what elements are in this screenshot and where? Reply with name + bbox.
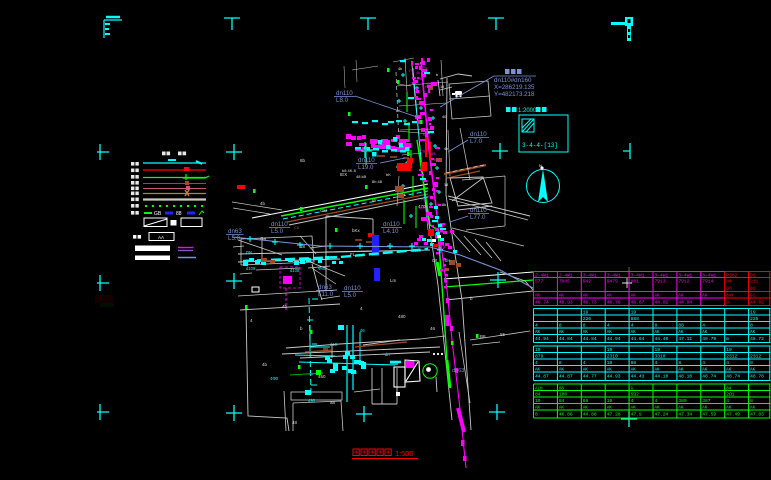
svg-text:d108: d108 [290, 268, 300, 273]
svg-text:AK: AK [535, 331, 541, 335]
svg-text:44.10: 44.10 [655, 374, 669, 380]
svg-text:2312: 2312 [750, 354, 761, 360]
svg-text:dn63: dn63 [452, 368, 464, 374]
svg-text:100: 100 [559, 392, 568, 398]
svg-text:47.9: 47.9 [631, 412, 642, 418]
svg-text:dn63: dn63 [318, 284, 332, 291]
svg-text:47.11: 47.11 [678, 336, 692, 342]
svg-text:AK: AK [750, 407, 756, 411]
svg-text:4Φ0: 4Φ0 [270, 376, 279, 381]
svg-text:2-4W1: 2-4W1 [535, 273, 549, 279]
svg-text:dn63: dn63 [228, 228, 242, 235]
svg-text:2-4W1: 2-4W1 [559, 273, 573, 279]
svg-text:L11.0: L11.0 [318, 291, 334, 298]
svg-text:19: 19 [631, 310, 637, 316]
svg-text:8b: 8b [300, 158, 306, 163]
svg-text:226: 226 [583, 316, 592, 322]
svg-text:bK: bK [386, 172, 391, 177]
svg-text:d10: d10 [330, 342, 338, 347]
svg-text:4: 4 [607, 323, 610, 329]
svg-text:8AK: 8AK [726, 295, 734, 299]
svg-text:8: 8 [678, 360, 681, 366]
svg-text:8: 8 [750, 360, 753, 366]
svg-text:48 kB: 48 kB [356, 174, 367, 179]
svg-text:46.86: 46.86 [559, 412, 573, 418]
svg-text:D1: D1 [750, 273, 756, 279]
svg-text:19: 19 [583, 310, 589, 316]
svg-text:dH: dH [445, 258, 450, 263]
svg-text:19: 19 [655, 347, 661, 353]
svg-text:AK: AK [607, 331, 613, 335]
svg-text:879: 879 [535, 354, 544, 360]
svg-text:AK: AK [726, 407, 732, 411]
svg-text:1:500: 1:500 [395, 449, 414, 458]
svg-text:3-4-4-[13]: 3-4-4-[13] [522, 142, 558, 149]
svg-text:4k: 4k [416, 70, 420, 75]
svg-text:AK: AK [655, 331, 661, 335]
svg-text:dn110: dn110 [470, 207, 487, 214]
svg-text:19: 19 [607, 398, 613, 404]
svg-text:AK: AK [702, 369, 708, 373]
svg-text:81: 81 [750, 286, 756, 292]
svg-text:AK: AK [750, 331, 756, 335]
svg-text:AK: AK [655, 295, 661, 299]
svg-text:AK: AK [535, 295, 541, 299]
svg-text:9479: 9479 [607, 279, 618, 285]
svg-text:FL: FL [350, 252, 356, 257]
svg-text:18: 18 [440, 85, 444, 89]
svg-text:Gkl: Gkl [320, 208, 327, 213]
svg-text:dn110: dn110 [383, 221, 400, 228]
svg-text:P8: P8 [428, 194, 434, 199]
svg-text:8: 8 [726, 300, 729, 306]
svg-text:48.74: 48.74 [702, 374, 716, 380]
svg-text:8: 8 [559, 360, 562, 366]
svg-text:48.73: 48.73 [583, 300, 597, 306]
svg-text:225: 225 [750, 316, 759, 322]
svg-text:Pg: Pg [421, 197, 426, 202]
svg-text:AK: AK [607, 369, 613, 373]
svg-text:AK: AK [607, 295, 613, 299]
svg-text:68: 68 [583, 398, 589, 404]
svg-text:L4.10: L4.10 [383, 228, 399, 235]
svg-text:AK: AK [678, 331, 684, 335]
svg-text:AK: AK [631, 369, 637, 373]
svg-text:dn110: dn110 [271, 221, 288, 228]
svg-text:AK: AK [631, 295, 637, 299]
svg-text:8: 8 [535, 412, 538, 418]
svg-text:5Ω2: 5Ω2 [631, 392, 640, 398]
svg-text:DN: DN [246, 250, 252, 255]
svg-text:AK: AK [583, 295, 589, 299]
svg-text:18: 18 [300, 244, 306, 249]
svg-text:AK: AK [655, 407, 661, 411]
svg-text:8: 8 [559, 323, 562, 329]
svg-text:2Ω1: 2Ω1 [726, 392, 735, 398]
svg-text:4: 4 [655, 360, 658, 366]
svg-text:47.24: 47.24 [655, 412, 669, 418]
svg-text:7913: 7913 [655, 279, 666, 285]
svg-text:P8: P8 [417, 138, 423, 143]
svg-text:AK: AK [678, 295, 684, 299]
svg-text:3-4W1: 3-4W1 [583, 273, 597, 279]
svg-text:4: 4 [535, 323, 538, 329]
svg-text:7985: 7985 [559, 279, 570, 285]
svg-text:4b: 4b [282, 304, 288, 309]
svg-text:1:2000: 1:2000 [518, 108, 537, 114]
svg-text:b: b [436, 73, 438, 77]
svg-text:AK: AK [678, 407, 684, 411]
svg-text:08: 08 [432, 258, 438, 263]
svg-text:dn110: dn110 [336, 90, 353, 97]
svg-text:44.77: 44.77 [583, 374, 597, 380]
svg-text:480: 480 [398, 314, 406, 319]
svg-text:Pg: Pg [409, 68, 414, 73]
svg-text:19: 19 [607, 360, 613, 366]
svg-text:44.84: 44.84 [559, 336, 573, 342]
svg-text:4: 4 [726, 360, 729, 366]
svg-text:48.93: 48.93 [559, 300, 573, 306]
svg-text:d110: d110 [412, 248, 422, 253]
svg-text:4: 4 [535, 360, 538, 366]
svg-text:48.10: 48.10 [678, 374, 692, 380]
svg-text:4: 4 [726, 398, 729, 404]
svg-text:8b: 8b [442, 203, 446, 207]
svg-text:L5.0: L5.0 [228, 235, 241, 242]
svg-text:19: 19 [750, 310, 756, 316]
svg-text:dn110: dn110 [358, 157, 375, 164]
svg-text:GB: GB [154, 211, 162, 217]
svg-text:4: 4 [631, 398, 634, 404]
svg-text:dn110#dn160: dn110#dn160 [494, 77, 532, 84]
svg-text:84: 84 [726, 388, 732, 392]
svg-text:48.87: 48.87 [631, 300, 645, 306]
svg-text:88: 88 [678, 323, 684, 329]
svg-text:88: 88 [176, 211, 182, 217]
svg-text:48.72: 48.72 [750, 336, 764, 342]
svg-text:942: 942 [583, 279, 592, 285]
svg-text:AK: AK [559, 407, 565, 411]
svg-text:bKx: bKx [352, 228, 361, 233]
svg-text:4: 4 [583, 360, 586, 366]
svg-text:3-4W1: 3-4W1 [607, 273, 621, 279]
svg-text:44.84: 44.84 [678, 300, 692, 306]
svg-text:490: 490 [308, 398, 316, 403]
svg-text:44.94: 44.94 [535, 336, 549, 342]
svg-text:4b: 4b [398, 67, 402, 71]
svg-text:19: 19 [726, 347, 732, 353]
svg-text:387: 387 [702, 398, 711, 404]
svg-text:kW: kW [423, 132, 429, 137]
svg-text:AK: AK [726, 369, 732, 373]
svg-text:7912: 7912 [678, 279, 689, 285]
svg-text:44.46: 44.46 [655, 336, 669, 342]
svg-text:44.94: 44.94 [607, 336, 621, 342]
svg-text:8: 8 [750, 398, 753, 404]
svg-text:Ga: Ga [260, 236, 267, 241]
svg-text:AK: AK [583, 407, 589, 411]
svg-text:4b: 4b [260, 201, 266, 206]
svg-text:4: 4 [702, 323, 705, 329]
svg-text:P8: P8 [420, 103, 426, 108]
svg-text:48: 48 [292, 420, 298, 425]
svg-text:AK: AK [702, 331, 708, 335]
svg-text:470: 470 [418, 204, 426, 209]
svg-text:44.87: 44.87 [559, 374, 573, 380]
svg-text:3-4W1: 3-4W1 [631, 273, 645, 279]
svg-text:48.76: 48.76 [607, 300, 621, 306]
svg-text:L5.0: L5.0 [344, 292, 357, 299]
svg-text:44.84: 44.84 [631, 336, 645, 342]
svg-text:48.74: 48.74 [535, 300, 549, 306]
svg-text:dn110: dn110 [344, 285, 361, 292]
svg-text:AK: AK [559, 331, 565, 335]
svg-text:48.78: 48.78 [750, 374, 764, 380]
svg-text:46: 46 [430, 326, 436, 331]
svg-text:4b: 4b [262, 362, 268, 367]
svg-text:d8: d8 [352, 370, 357, 375]
svg-text:4: 4 [631, 323, 634, 329]
svg-text:L7.0: L7.0 [470, 138, 483, 145]
svg-text:44.82: 44.82 [655, 300, 669, 306]
svg-text:3310: 3310 [655, 354, 666, 360]
svg-text:dn110: dn110 [470, 131, 487, 138]
svg-text:47.49: 47.49 [726, 412, 740, 418]
svg-text:AK: AK [559, 369, 565, 373]
svg-text:48.74: 48.74 [726, 374, 740, 380]
svg-text:4: 4 [702, 360, 705, 366]
svg-text:3-4W1: 3-4W1 [678, 273, 692, 279]
svg-text:P382: P382 [726, 273, 737, 279]
svg-text:19: 19 [607, 347, 613, 353]
svg-text:AK: AK [559, 295, 565, 299]
svg-text:C8: C8 [294, 225, 300, 230]
svg-text:380: 380 [678, 398, 687, 404]
svg-text:47.28: 47.28 [607, 412, 621, 418]
svg-text:81: 81 [750, 295, 756, 299]
svg-text:44.84: 44.84 [583, 336, 597, 342]
svg-text:B8: B8 [480, 334, 486, 339]
svg-text:88: 88 [427, 81, 432, 86]
svg-text:47.83: 47.83 [750, 412, 764, 418]
svg-text:44.43: 44.43 [631, 374, 645, 380]
svg-text:88: 88 [431, 151, 436, 156]
svg-text:19: 19 [535, 347, 541, 353]
svg-text:8: 8 [750, 323, 753, 329]
svg-text:38: 38 [726, 286, 732, 292]
svg-text:8: 8 [583, 323, 586, 329]
svg-text:211: 211 [750, 279, 759, 285]
svg-text:2312: 2312 [726, 354, 737, 360]
svg-text:Pg: Pg [420, 148, 425, 153]
svg-text:44.88: 44.88 [583, 412, 597, 418]
svg-text:47.59: 47.59 [702, 412, 716, 418]
svg-text:L8.0: L8.0 [336, 97, 349, 104]
svg-text:8b 48: 8b 48 [372, 179, 383, 184]
svg-text:L5.0: L5.0 [271, 228, 284, 235]
svg-text:AK: AK [583, 369, 589, 373]
svg-text:2310: 2310 [607, 354, 618, 360]
svg-text:44.87: 44.87 [535, 374, 549, 380]
svg-text:460: 460 [318, 374, 326, 379]
svg-text:N: N [539, 163, 542, 168]
svg-text:55: 55 [500, 332, 506, 337]
svg-text:AK: AK [583, 331, 589, 335]
svg-text:3-4W1: 3-4W1 [702, 273, 716, 279]
svg-text:AK: AK [535, 369, 541, 373]
svg-text:4b: 4b [444, 147, 448, 151]
svg-text:Y=482173.218: Y=482173.218 [494, 91, 535, 98]
svg-text:AK: AK [702, 407, 708, 411]
svg-text:#M: #M [430, 162, 436, 167]
svg-text:40: 40 [442, 115, 446, 119]
svg-text:88: 88 [631, 360, 637, 366]
svg-text:981: 981 [631, 279, 640, 285]
svg-text:Φ60: Φ60 [318, 266, 327, 271]
svg-text:AK: AK [535, 407, 541, 411]
svg-text:L19.0: L19.0 [358, 164, 374, 171]
svg-text:48.79: 48.79 [702, 336, 716, 342]
svg-text:84: 84 [559, 398, 565, 404]
svg-text:4: 4 [655, 398, 658, 404]
svg-text:d6: d6 [360, 328, 365, 333]
svg-text:AK: AK [631, 407, 637, 411]
svg-text:8: 8 [655, 323, 658, 329]
svg-text:88: 88 [559, 388, 565, 392]
svg-text:577: 577 [535, 279, 544, 285]
svg-text:AK: AK [655, 369, 661, 373]
svg-text:ALH: ALH [535, 388, 543, 392]
svg-text:AK: AK [631, 331, 637, 335]
svg-text:84: 84 [535, 392, 541, 398]
svg-text:Pg: Pg [422, 65, 427, 70]
svg-text:84: 84 [726, 279, 732, 285]
svg-text:44.93: 44.93 [607, 374, 621, 380]
svg-text:tEX: tEX [340, 172, 347, 177]
svg-text:44.02: 44.02 [750, 300, 764, 306]
svg-text:18: 18 [444, 183, 448, 187]
svg-text:d108: d108 [246, 266, 256, 271]
svg-text:AK: AK [702, 295, 708, 299]
svg-text:47.34: 47.34 [678, 412, 692, 418]
svg-text:X=286219.135: X=286219.135 [494, 84, 535, 91]
svg-text:AK: AK [678, 369, 684, 373]
svg-text:19: 19 [535, 398, 541, 404]
svg-text:L77.0: L77.0 [470, 214, 486, 221]
svg-text:AA: AA [158, 235, 164, 240]
svg-text:888: 888 [631, 316, 640, 322]
svg-text:AK: AK [750, 369, 756, 373]
svg-text:AK: AK [607, 407, 613, 411]
svg-text:a8: a8 [330, 400, 336, 405]
svg-text:7914: 7914 [702, 279, 713, 285]
svg-text:m: m [726, 337, 729, 342]
svg-text:3-4W1: 3-4W1 [655, 273, 669, 279]
svg-text:Lm: Lm [390, 278, 397, 283]
svg-text:dn: dn [385, 352, 390, 357]
